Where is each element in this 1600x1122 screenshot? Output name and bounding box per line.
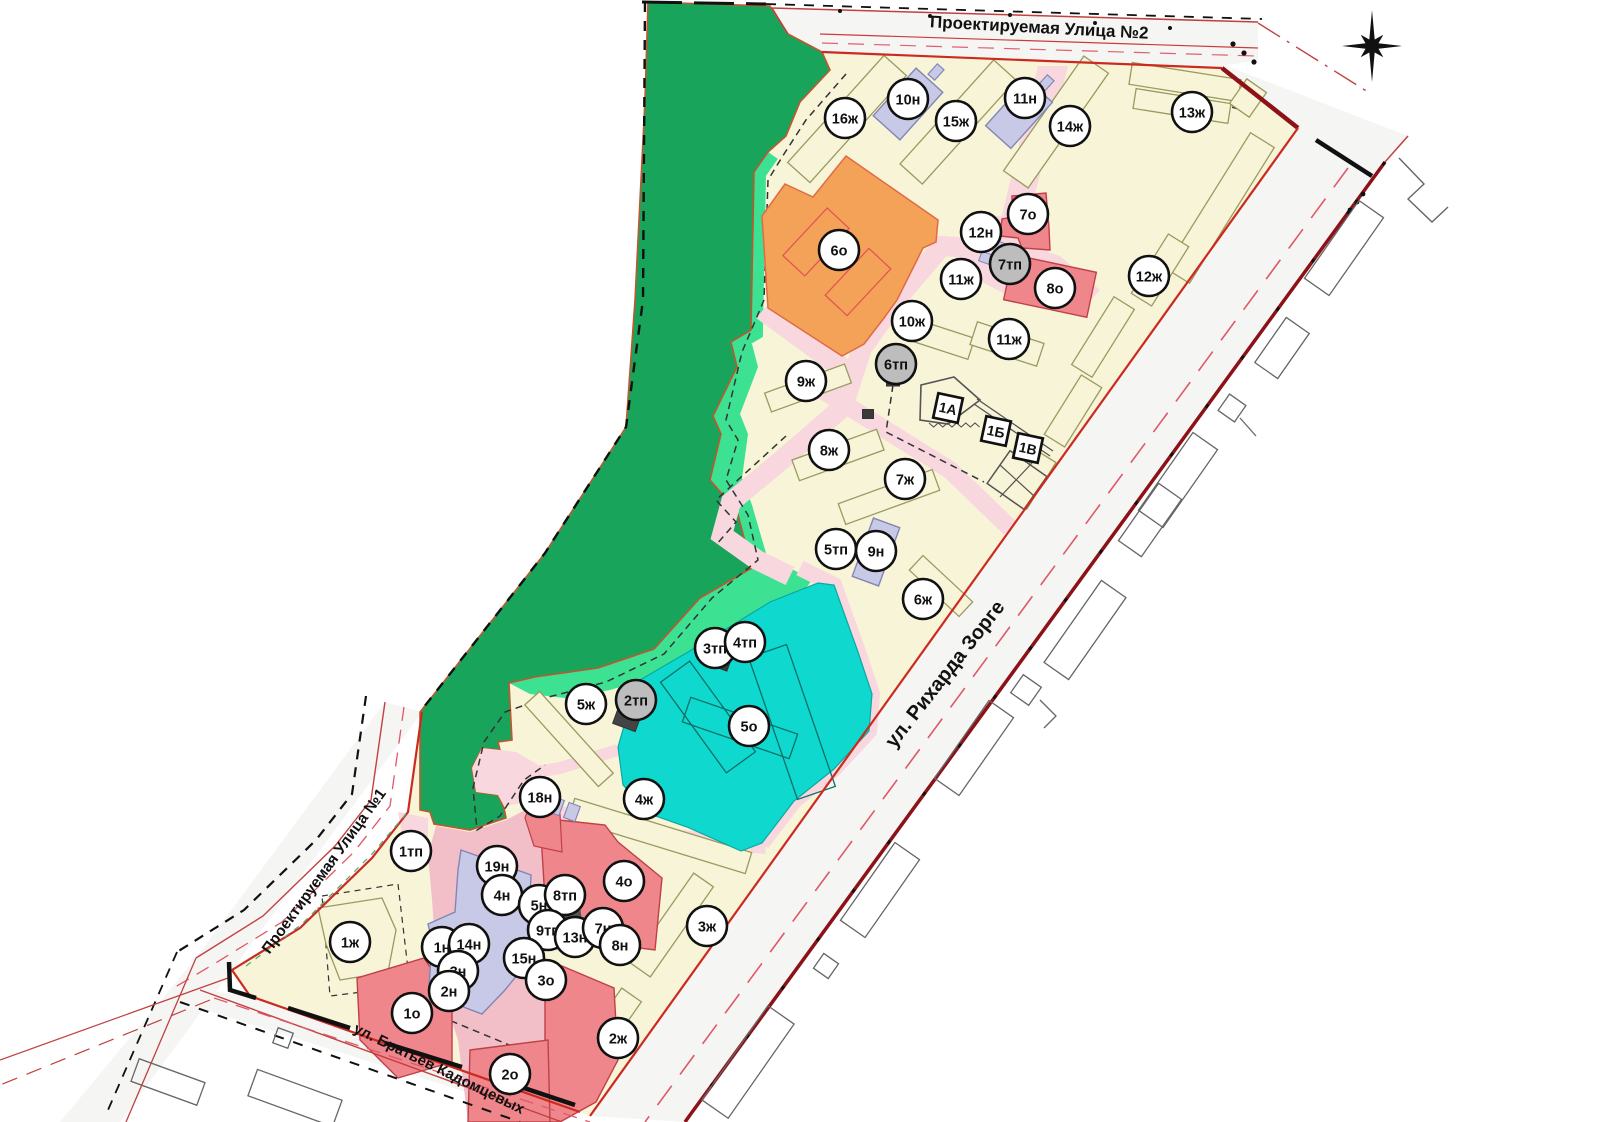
- svg-text:11ж: 11ж: [948, 273, 974, 289]
- svg-text:9н: 9н: [868, 545, 885, 561]
- svg-text:13ж: 13ж: [1179, 106, 1206, 122]
- svg-text:9ж: 9ж: [797, 375, 816, 391]
- svg-text:5тп: 5тп: [824, 543, 848, 559]
- svg-text:8о: 8о: [1047, 282, 1064, 298]
- svg-text:12н: 12н: [969, 226, 994, 242]
- svg-text:5ж: 5ж: [577, 698, 596, 714]
- svg-text:4тп: 4тп: [733, 636, 757, 652]
- svg-text:3ж: 3ж: [698, 920, 717, 936]
- svg-text:18н: 18н: [528, 791, 553, 807]
- svg-text:4н: 4н: [494, 889, 511, 905]
- svg-text:6тп: 6тп: [884, 358, 908, 374]
- svg-text:2ж: 2ж: [609, 1032, 628, 1048]
- svg-text:2н: 2н: [441, 985, 458, 1001]
- svg-text:11н: 11н: [1013, 92, 1037, 108]
- svg-text:12ж: 12ж: [1136, 270, 1163, 286]
- svg-text:8н: 8н: [612, 939, 629, 955]
- svg-text:5о: 5о: [741, 720, 758, 736]
- svg-text:16ж: 16ж: [832, 112, 859, 128]
- svg-text:10ж: 10ж: [899, 315, 926, 331]
- svg-text:1о: 1о: [404, 1007, 421, 1023]
- svg-text:8тп: 8тп: [553, 889, 577, 905]
- svg-text:1ж: 1ж: [341, 936, 360, 952]
- svg-text:11ж: 11ж: [996, 333, 1022, 349]
- svg-text:3о: 3о: [538, 974, 555, 990]
- svg-text:7тп: 7тп: [998, 258, 1022, 274]
- svg-text:15ж: 15ж: [943, 115, 970, 131]
- svg-text:2о: 2о: [502, 1068, 519, 1084]
- svg-text:2тп: 2тп: [624, 694, 648, 710]
- svg-text:10н: 10н: [896, 93, 921, 109]
- svg-text:19н: 19н: [485, 860, 510, 876]
- svg-text:4ж: 4ж: [635, 793, 654, 809]
- svg-text:8ж: 8ж: [820, 444, 839, 460]
- svg-text:4о: 4о: [616, 875, 633, 891]
- svg-text:3тп: 3тп: [703, 642, 727, 658]
- svg-text:6ж: 6ж: [914, 593, 933, 609]
- svg-text:7ж: 7ж: [896, 473, 915, 489]
- svg-text:14ж: 14ж: [1057, 120, 1084, 136]
- svg-text:6о: 6о: [831, 244, 848, 260]
- svg-text:7о: 7о: [1020, 208, 1037, 224]
- svg-text:1тп: 1тп: [399, 845, 423, 861]
